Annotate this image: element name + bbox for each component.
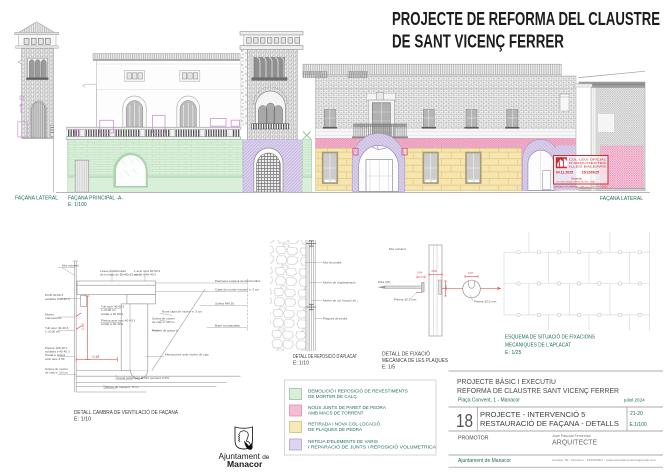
svg-text:0.07: 0.07 <box>468 271 474 275</box>
svg-text:D'ARQUITECTES: D'ARQUITECTES <box>569 161 607 165</box>
svg-text:Manacor: Manacor <box>227 459 263 469</box>
svg-text:MECÀNICA DE LES PLAQUES: MECÀNICA DE LES PLAQUES <box>382 357 449 364</box>
svg-text:I REPARACIÓ DE JUNTS I REPOSIC: I REPARACIÓ DE JUNTS I REPOSICIÓ VOLUMET… <box>308 444 437 450</box>
svg-text:E: 1/10: E: 1/10 <box>293 361 309 367</box>
svg-text:RESTAURACIÓ DE FAÇANA - DETALL: RESTAURACIÓ DE FAÇANA - DETALLS <box>480 419 619 428</box>
svg-text:ESQUEMA DE SITUACIÓ DE FIXACIO: ESQUEMA DE SITUACIÓ DE FIXACIONS <box>505 334 595 341</box>
svg-text:DE MORTER DE CALÇ: DE MORTER DE CALÇ <box>308 394 357 399</box>
svg-text:AMB MACS DE TORRENT: AMB MACS DE TORRENT <box>308 411 364 416</box>
svg-text:Mur de pedra: Mur de pedra <box>323 261 342 265</box>
svg-text:Ajuntament de Manacor: Ajuntament de Manacor <box>458 458 511 464</box>
svg-text:0.45: 0.45 <box>93 355 100 359</box>
svg-text:E: 1/5: E: 1/5 <box>382 365 395 371</box>
svg-text:Reblert de grava 3: Reblert de grava 3 <box>152 329 178 333</box>
svg-text:Amistat, 59 - Manacor - 616060: Amistat, 59 - Manacor - 616060901 - joan… <box>552 458 657 462</box>
svg-text:Canal polipropilè Ø 110 penden: Canal polipropilè Ø 110 pendent 0.5% <box>117 376 169 380</box>
svg-text:Solera HM-20: Solera HM-20 <box>215 302 234 306</box>
svg-text:DETALL DE FIXACIÓ: DETALL DE FIXACIÓ <box>382 350 430 357</box>
svg-text:Plaques de pedra: Plaques de pedra <box>323 317 348 321</box>
svg-text:DE PLAQUES DE PEDRA: DE PLAQUES DE PEDRA <box>308 427 363 432</box>
svg-text:soldat a 40.40.3: soldat a 40.40.3 <box>101 322 123 326</box>
svg-text:ILLES BALEARS: ILLES BALEARS <box>569 165 607 169</box>
svg-text:DETALL CAMBRA DE VENTILACIÓ DE: DETALL CAMBRA DE VENTILACIÓ DE FAÇANA <box>74 409 178 416</box>
svg-text:Mur existent: Mur existent <box>62 264 79 268</box>
svg-text:COL·LEGI OFICIAL D'ARQUITECTES: COL·LEGI OFICIAL D'ARQUITECTES - VISAT <box>556 181 596 184</box>
svg-text:DE SANT VICENÇ FERRER: DE SANT VICENÇ FERRER <box>392 31 564 52</box>
svg-text:Morter de neteja e: 5 cm: Morter de neteja e: 5 cm <box>105 385 139 389</box>
svg-text:04.11.2025: 04.11.2025 <box>556 171 573 175</box>
svg-text:FAÇANA LATERAL: FAÇANA LATERAL <box>15 196 58 202</box>
svg-text:de calç e: 10 cm: de calç e: 10 cm <box>45 371 68 375</box>
svg-text:PROMOTOR: PROMOTOR <box>458 435 489 441</box>
svg-text:E: 1/10: E: 1/10 <box>74 417 91 423</box>
svg-text:Pletina 30.3 mm: Pletina 30.3 mm <box>474 299 497 303</box>
svg-text:M14 2(4): M14 2(4) <box>378 280 390 284</box>
svg-text:PROJECTE BÀSIC I EXECUTIU: PROJECTE BÀSIC I EXECUTIU <box>457 377 556 386</box>
svg-text:Paviment existent de llambordi: Paviment existent de llambordins <box>215 279 261 283</box>
svg-text:soldat a 40.40.3: soldat a 40.40.3 <box>134 273 156 277</box>
svg-text:RETIRADA I NOVA COL·LOCACIÓ: RETIRADA I NOVA COL·LOCACIÓ <box>308 421 381 427</box>
svg-text:Mur existent: Mur existent <box>389 247 406 251</box>
svg-text:juliol 2024: juliol 2024 <box>623 397 645 402</box>
svg-text:NOUS JUNTS DE PARET DE PEDRA: NOUS JUNTS DE PARET DE PEDRA <box>308 405 387 410</box>
svg-text:ARQUITECTE: ARQUITECTE <box>552 440 597 447</box>
svg-text:soldada a 40.40.3: soldada a 40.40.3 <box>45 297 70 301</box>
svg-text:VALIDACIO DOCUMENTAL COAIB www: VALIDACIO DOCUMENTAL COAIB www.coaib.es … <box>555 186 608 189</box>
svg-text:de calç e: 10 cm: de calç e: 10 cm <box>152 320 175 324</box>
svg-text:Plaça Convent, 1 - Manacor: Plaça Convent, 1 - Manacor <box>458 397 520 403</box>
svg-text:E.1/100: E.1/100 <box>630 422 647 428</box>
svg-text:Base compactada: Base compactada <box>215 324 240 328</box>
svg-text:Nova capa de morter e: 3 cm: Nova capa de morter e: 3 cm <box>162 309 202 313</box>
svg-text:0.08: 0.08 <box>432 269 438 273</box>
svg-text:18: 18 <box>456 410 473 431</box>
svg-text:NETEJA D'ELEMENTS DE VARIS: NETEJA D'ELEMENTS DE VARIS <box>308 439 378 444</box>
svg-text:PROJECTE - INTERVENCIÓ 5: PROJECTE - INTERVENCIÓ 5 <box>480 410 585 419</box>
svg-text:amb tacs 3.59: amb tacs 3.59 <box>45 357 65 361</box>
svg-text:FAÇANA LATERAL: FAÇANA LATERAL <box>600 196 643 202</box>
svg-text:1 c/100 cm: 1 c/100 cm <box>45 330 61 334</box>
svg-text:0.04: 0.04 <box>417 271 423 275</box>
svg-text:COL·LEGI OFICIAL: COL·LEGI OFICIAL <box>569 157 607 161</box>
svg-text:15/1209/25: 15/1209/25 <box>582 171 600 175</box>
svg-text:Morter de col·locació de ¡: Morter de col·locació de ¡ <box>323 299 358 303</box>
svg-text:Capa de morter existent e: 3 c: Capa de morter existent e: 3 cm <box>215 287 259 291</box>
svg-text:de formigó de 50x40x15 cm: de formigó de 50x40x15 cm <box>100 273 139 277</box>
svg-text:FAÇANA PRINCIPAL -A-: FAÇANA PRINCIPAL -A- <box>68 196 123 202</box>
svg-text:Segellat: Segellat <box>571 176 582 180</box>
svg-text:macroporós: macroporós <box>45 316 62 320</box>
svg-text:Joan Pascual Femenías: Joan Pascual Femenías <box>552 434 591 438</box>
svg-text:Mestra pres amb morter de calç: Mestra pres amb morter de calç <box>165 353 209 357</box>
svg-text:REFORMA DE CLAUSTRE SANT VICEN: REFORMA DE CLAUSTRE SANT VICENÇ FERRER <box>457 386 619 395</box>
svg-text:DEMOLICIÓ I REPOSICIÓ DE REVES: DEMOLICIÓ I REPOSICIÓ DE REVESTIMENTS <box>308 388 408 394</box>
svg-text:MECÀNIQUES DE L'APLACAT: MECÀNIQUES DE L'APLACAT <box>505 341 572 348</box>
svg-text:E: 1/100: E: 1/100 <box>68 202 87 208</box>
svg-text:PROJECTE DE REFORMA DEL CLAUST: PROJECTE DE REFORMA DEL CLAUSTRE <box>392 8 660 29</box>
svg-text:Pletina 30.3 mm: Pletina 30.3 mm <box>394 298 417 302</box>
svg-text:Morter de regularització: Morter de regularització <box>323 281 356 285</box>
svg-text:soldat a 40.80.3: soldat a 40.80.3 <box>101 312 123 316</box>
svg-text:DETALL DE REPOSICIÓ D'APLACAT: DETALL DE REPOSICIÓ D'APLACAT <box>293 353 357 360</box>
svg-text:E: 1/25: E: 1/25 <box>505 350 522 356</box>
svg-text:0.15: 0.15 <box>444 284 448 290</box>
svg-text:1.90: 1.90 <box>81 323 85 330</box>
svg-text:21-20: 21-20 <box>630 411 643 417</box>
